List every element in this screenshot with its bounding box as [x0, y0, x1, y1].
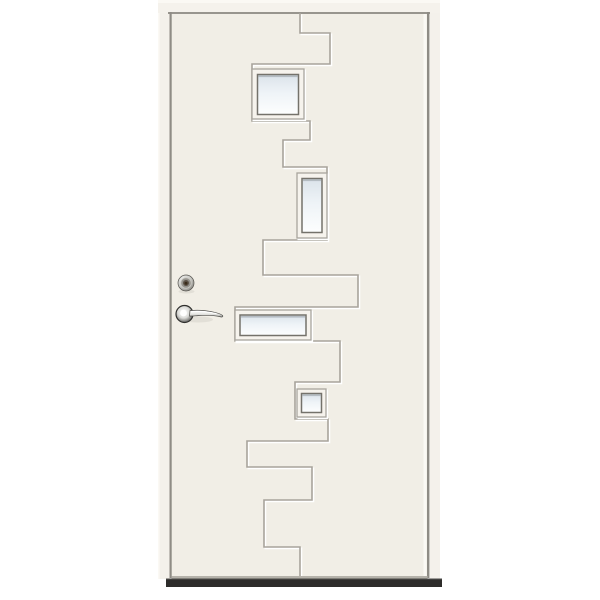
frame-left-strip — [158, 13, 170, 579]
door-right-edge-line — [427, 12, 429, 578]
window-2-tall — [297, 173, 328, 239]
window-1-square-glass — [258, 75, 299, 115]
window-4-small-square — [297, 389, 327, 418]
window-3-wide-glass-top-shadow — [241, 316, 305, 318]
product-photo — [0, 0, 600, 600]
door-bottom-edge — [172, 576, 428, 579]
frame-left-highlight — [158, 13, 160, 579]
handle-rose-highlight — [180, 310, 187, 317]
door-left-edge-line — [170, 12, 172, 578]
window-2-tall-glass-top-shadow — [303, 180, 321, 182]
window-3-wide — [235, 310, 312, 341]
door-right-inner-highlight — [424, 14, 427, 576]
window-4-small-square-glass — [302, 394, 322, 413]
frame-head-highlight — [158, 0, 440, 3]
keyhole-icon — [185, 282, 188, 285]
threshold-bar — [166, 579, 442, 588]
front-door-illustration — [0, 0, 600, 600]
lock-cylinder — [178, 275, 195, 294]
window-3-wide-glass — [240, 315, 306, 336]
window-1-square-glass-top-shadow — [259, 76, 298, 78]
door-top-edge-line — [168, 12, 430, 14]
window-4-small-square-glass-top-shadow — [303, 395, 321, 397]
window-1-square — [252, 69, 305, 120]
threshold-top-line — [166, 579, 442, 580]
frame-right-strip — [430, 13, 441, 579]
window-2-tall-glass — [302, 179, 322, 233]
